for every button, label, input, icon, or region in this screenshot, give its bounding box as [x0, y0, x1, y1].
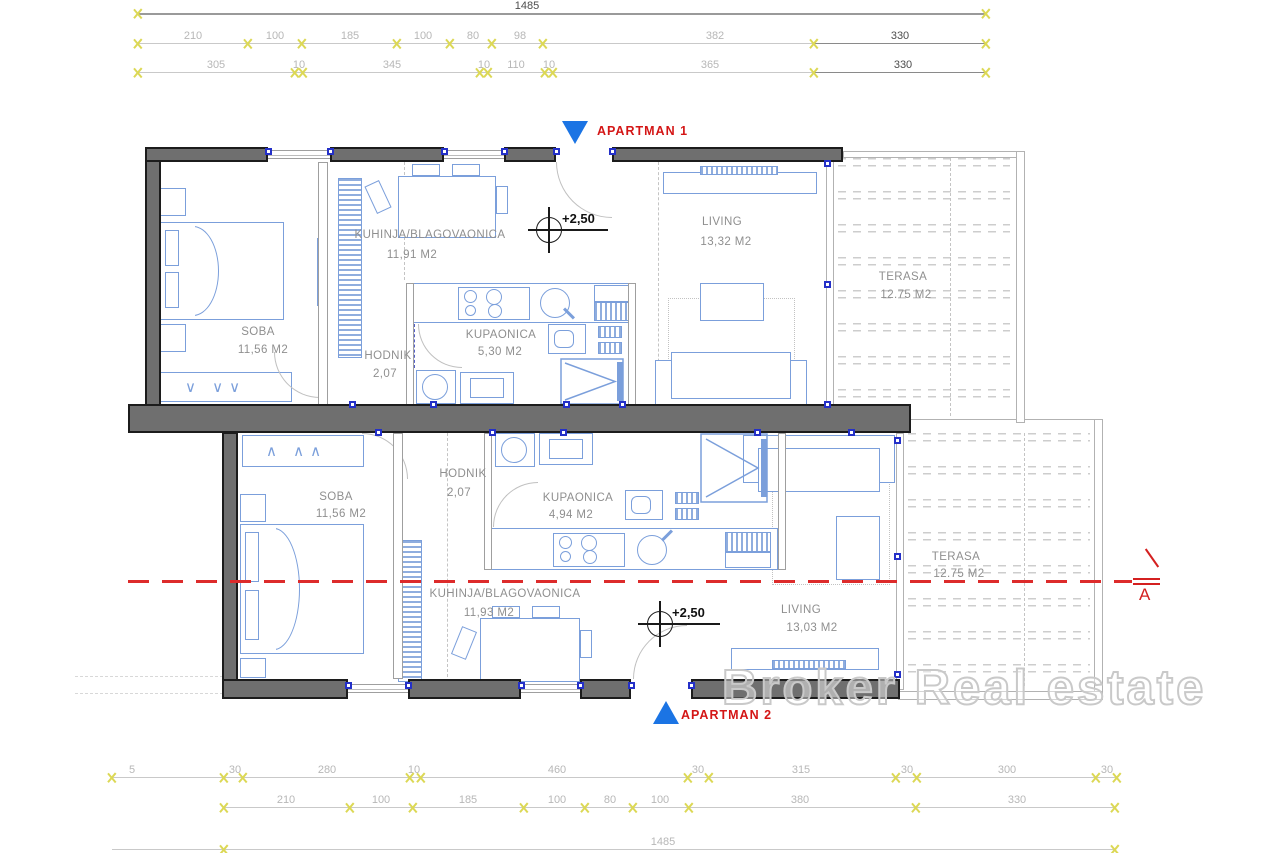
dishwasher: [594, 302, 630, 321]
dim-label: 100: [649, 795, 671, 806]
dim-label: 315: [790, 765, 812, 776]
nightstand: [240, 658, 266, 678]
terrace-2-top-edge: [906, 419, 1102, 420]
tick: [808, 38, 820, 50]
apt2-bath-door-arc: [493, 482, 538, 527]
room-name: SOBA: [319, 491, 353, 503]
dim-label: 330: [1006, 795, 1028, 806]
chair: [452, 164, 480, 176]
wardrobe: [338, 178, 362, 358]
window-marker: [327, 148, 334, 155]
apt1-bath-door-arc: [418, 324, 462, 368]
tick: [518, 802, 530, 814]
tick: [808, 67, 820, 79]
dining-table: [480, 618, 580, 682]
room-area: 2,07: [447, 487, 471, 499]
nightstand: [240, 494, 266, 522]
terrace-1-top-edge: [843, 151, 1025, 158]
window-marker: [441, 148, 448, 155]
dim-label: 1485: [513, 1, 541, 12]
tick: [890, 772, 902, 784]
tick: [1111, 772, 1123, 784]
dim-label: 100: [546, 795, 568, 806]
section-marker: A: [1128, 552, 1168, 612]
dim-label: 210: [275, 795, 297, 806]
apt2-bottom-wall-seg3: [580, 679, 631, 699]
room-area: 13,03 M2: [786, 622, 837, 634]
section-marker-letter: A: [1139, 585, 1150, 605]
tick: [297, 67, 309, 79]
glass-marker: [894, 437, 901, 444]
dim-label: 100: [412, 31, 434, 42]
room-area: 12.75 M2: [880, 289, 931, 301]
bed-blanket-curve: [276, 528, 302, 650]
washing-machine-drum: [501, 437, 527, 463]
apt1-left-wall: [145, 147, 161, 415]
room-name: KUHINJA/BLAGOVAONICA: [355, 229, 506, 241]
hanger-symbols: ∨ ∨∨: [185, 378, 246, 396]
glass-marker: [824, 281, 831, 288]
level-value: +2,50: [672, 605, 705, 620]
tick: [407, 802, 419, 814]
room-area: 11,93 M2: [464, 607, 514, 619]
level-marker-line: [638, 623, 720, 625]
tick: [547, 67, 559, 79]
apt2-left-wall: [222, 432, 238, 699]
level-marker-line: [528, 229, 608, 231]
tick: [980, 38, 992, 50]
washing-machine-drum: [422, 374, 448, 400]
dim-label: 5: [127, 765, 137, 776]
radiator: [675, 508, 699, 520]
nightstand: [160, 324, 186, 352]
dim-line: [138, 43, 814, 44]
dim-label: 330: [892, 60, 914, 71]
dim-label: 80: [465, 31, 481, 42]
door-marker: [609, 148, 616, 155]
tick: [910, 802, 922, 814]
tick: [703, 772, 715, 784]
apt1-bath-right-wall: [628, 283, 636, 405]
tv: [700, 166, 778, 175]
dishwasher: [725, 532, 771, 552]
room-name: TERASA: [879, 271, 927, 283]
glass-marker: [894, 671, 901, 678]
tick: [579, 802, 591, 814]
shower: [560, 358, 630, 405]
dim-label: 382: [704, 31, 726, 42]
apt1-top-wall-seg1: [145, 147, 268, 162]
sofa-seat: [671, 352, 791, 399]
dim-label: 345: [381, 60, 403, 71]
tick: [132, 67, 144, 79]
radiator: [598, 326, 622, 338]
room-area: 4,94 M2: [549, 509, 593, 521]
burner: [465, 305, 476, 316]
sofa-seat: [758, 448, 880, 492]
dim-label: 100: [264, 31, 286, 42]
apt2-bath-left-wall: [484, 433, 492, 570]
room-area: 11,91 M2: [387, 249, 437, 261]
glass-marker: [824, 401, 831, 408]
tick: [106, 772, 118, 784]
tick: [415, 772, 427, 784]
room-name: LIVING: [702, 216, 742, 228]
window-marker: [345, 682, 352, 689]
bath-sink-basin: [549, 439, 583, 459]
dim-line: [224, 807, 1115, 808]
chair: [580, 630, 592, 658]
wall-marker: [375, 429, 382, 436]
radiator: [598, 342, 622, 354]
door-marker: [628, 682, 635, 689]
tick: [537, 38, 549, 50]
chair: [412, 164, 440, 176]
appliance: [594, 285, 630, 302]
apt1-entrance-door-arc: [556, 162, 612, 218]
room-name: LIVING: [781, 604, 821, 616]
tick: [980, 8, 992, 20]
dim-label: 380: [789, 795, 811, 806]
dim-label: 300: [996, 765, 1018, 776]
level-value: +2,50: [562, 211, 595, 226]
hanger-symbols: ∧ ∧∧: [266, 442, 327, 460]
tick: [237, 772, 249, 784]
tick: [1109, 844, 1121, 853]
tick: [1090, 772, 1102, 784]
apt1-window-1: [268, 150, 330, 159]
room-area: 11,56 M2: [238, 344, 288, 356]
door-marker: [553, 148, 560, 155]
burner: [560, 551, 571, 562]
glass-marker: [824, 160, 831, 167]
room-area: 2,07: [373, 368, 397, 380]
tick: [683, 802, 695, 814]
tick: [218, 772, 230, 784]
section-line: [128, 580, 1132, 583]
chair: [496, 186, 508, 214]
glass-marker: [894, 553, 901, 560]
toilet-bowl: [554, 330, 574, 348]
wall-marker: [754, 429, 761, 436]
tv: [772, 660, 846, 669]
dim-label: 460: [546, 765, 568, 776]
burner: [583, 550, 597, 564]
window-marker: [518, 682, 525, 689]
terrace-1-decking: [838, 158, 1010, 416]
wall-marker: [848, 429, 855, 436]
terrace-2-divider: [1024, 433, 1025, 686]
tick: [911, 772, 923, 784]
wall-marker: [560, 429, 567, 436]
apt2-bottom-wall-seg4: [691, 679, 900, 699]
appliance: [725, 552, 771, 568]
burner: [581, 535, 597, 551]
burner: [488, 304, 502, 318]
pillow: [245, 532, 259, 582]
dim-line: [814, 43, 986, 44]
bath-sink-basin: [470, 378, 504, 398]
window-marker: [501, 148, 508, 155]
pillow: [165, 230, 179, 266]
chair: [451, 626, 477, 660]
tick: [444, 38, 456, 50]
room-name: KUPAONICA: [543, 492, 613, 504]
tick: [242, 38, 254, 50]
room-area: 11,56 M2: [316, 508, 366, 520]
tick: [132, 8, 144, 20]
construction-dash: [75, 693, 223, 694]
dim-label: 1485: [649, 837, 677, 848]
dim-label: 185: [457, 795, 479, 806]
chair: [532, 606, 560, 618]
coffee-table: [700, 283, 764, 321]
apt1-label: APARTMAN 1: [597, 124, 688, 138]
apt1-soba-partition: [318, 162, 328, 405]
apt2-label: APARTMAN 2: [681, 708, 772, 722]
kitchen-sink: [540, 288, 570, 318]
coffee-table: [836, 516, 880, 580]
wall-marker: [430, 401, 437, 408]
window-marker: [405, 682, 412, 689]
window-marker: [265, 148, 272, 155]
nightstand: [160, 188, 186, 216]
tick: [132, 38, 144, 50]
apt1-bath-door-line: [414, 324, 415, 368]
apt2-soba-partition: [393, 433, 403, 679]
apt2-window-2: [521, 684, 580, 693]
apt1-window-2: [444, 150, 504, 159]
dim-label: 365: [699, 60, 721, 71]
tick: [296, 38, 308, 50]
room-area: 5,30 M2: [478, 346, 522, 358]
section-marker-line: [1133, 578, 1160, 580]
burner: [486, 289, 502, 305]
terrace-2-bottom-edge: [898, 691, 1103, 700]
dim-label: 330: [889, 31, 911, 42]
burner: [559, 536, 572, 549]
dim-line: [112, 777, 1117, 778]
room-area: 12.75 M2: [933, 568, 984, 580]
bed-blanket-curve: [195, 226, 221, 316]
room-area: 13,32 M2: [700, 236, 751, 248]
tick: [980, 67, 992, 79]
wall-marker: [563, 401, 570, 408]
room-name: KUPAONICA: [466, 329, 536, 341]
dim-line-total-bottom: [112, 849, 1115, 850]
radiator: [675, 492, 699, 504]
apt1-top-wall-seg2: [330, 147, 444, 162]
wall-marker: [349, 401, 356, 408]
burner: [464, 290, 477, 303]
apt1-top-wall-seg3: [504, 147, 556, 162]
wall-marker: [619, 401, 626, 408]
construction-dash: [75, 676, 223, 677]
door-marker: [688, 682, 695, 689]
terrace-2-right-edge: [1094, 419, 1103, 700]
apt2-bottom-wall-seg2: [408, 679, 521, 699]
shower: [700, 433, 775, 503]
dim-line-total-top: [138, 13, 986, 15]
apt1-bath-left-wall: [406, 283, 414, 405]
level-marker-line: [548, 207, 550, 253]
dim-line: [814, 72, 986, 73]
tick: [391, 38, 403, 50]
floor-plan-canvas: 1485 210 100 185 100 80 98 382 330 305 1…: [0, 0, 1280, 853]
pillow: [165, 272, 179, 308]
terrace-1-divider: [950, 158, 951, 416]
tick: [482, 67, 494, 79]
wall-marker: [489, 429, 496, 436]
apt1-triangle-icon: [562, 121, 588, 144]
dim-label: 80: [602, 795, 618, 806]
dim-label: 305: [205, 60, 227, 71]
window-marker: [577, 682, 584, 689]
room-name: KUHINJA/BLAGOVAONICA: [430, 588, 581, 600]
apt2-bottom-wall-seg1: [222, 679, 348, 699]
tick: [218, 844, 230, 853]
tick: [1109, 802, 1121, 814]
section-marker-slash: [1145, 548, 1159, 567]
dim-label: 185: [339, 31, 361, 42]
dim-label: 110: [505, 60, 527, 71]
tick: [218, 802, 230, 814]
tv-console: [663, 172, 817, 194]
room-name: SOBA: [241, 326, 275, 338]
tick: [344, 802, 356, 814]
toilet-bowl: [631, 496, 651, 514]
room-name: HODNIK: [439, 468, 486, 480]
apt2-window-1: [348, 684, 408, 693]
dim-label: 280: [316, 765, 338, 776]
level-marker-line: [659, 601, 661, 647]
tick: [682, 772, 694, 784]
shared-middle-wall: [128, 404, 911, 433]
apt2-triangle-icon: [653, 701, 679, 724]
chair: [364, 180, 391, 214]
dim-label: 100: [370, 795, 392, 806]
room-name: TERASA: [932, 551, 980, 563]
apt2-glass-wall: [896, 433, 904, 690]
tick: [486, 38, 498, 50]
terrace-1-right-edge: [1016, 151, 1025, 423]
dim-label: 98: [512, 31, 528, 42]
room-name: HODNIK: [364, 350, 411, 362]
pillow: [245, 590, 259, 640]
tick: [627, 802, 639, 814]
dim-label: 210: [182, 31, 204, 42]
apt1-top-wall-seg4: [612, 147, 843, 162]
apt2-bath-right-wall: [778, 433, 786, 570]
